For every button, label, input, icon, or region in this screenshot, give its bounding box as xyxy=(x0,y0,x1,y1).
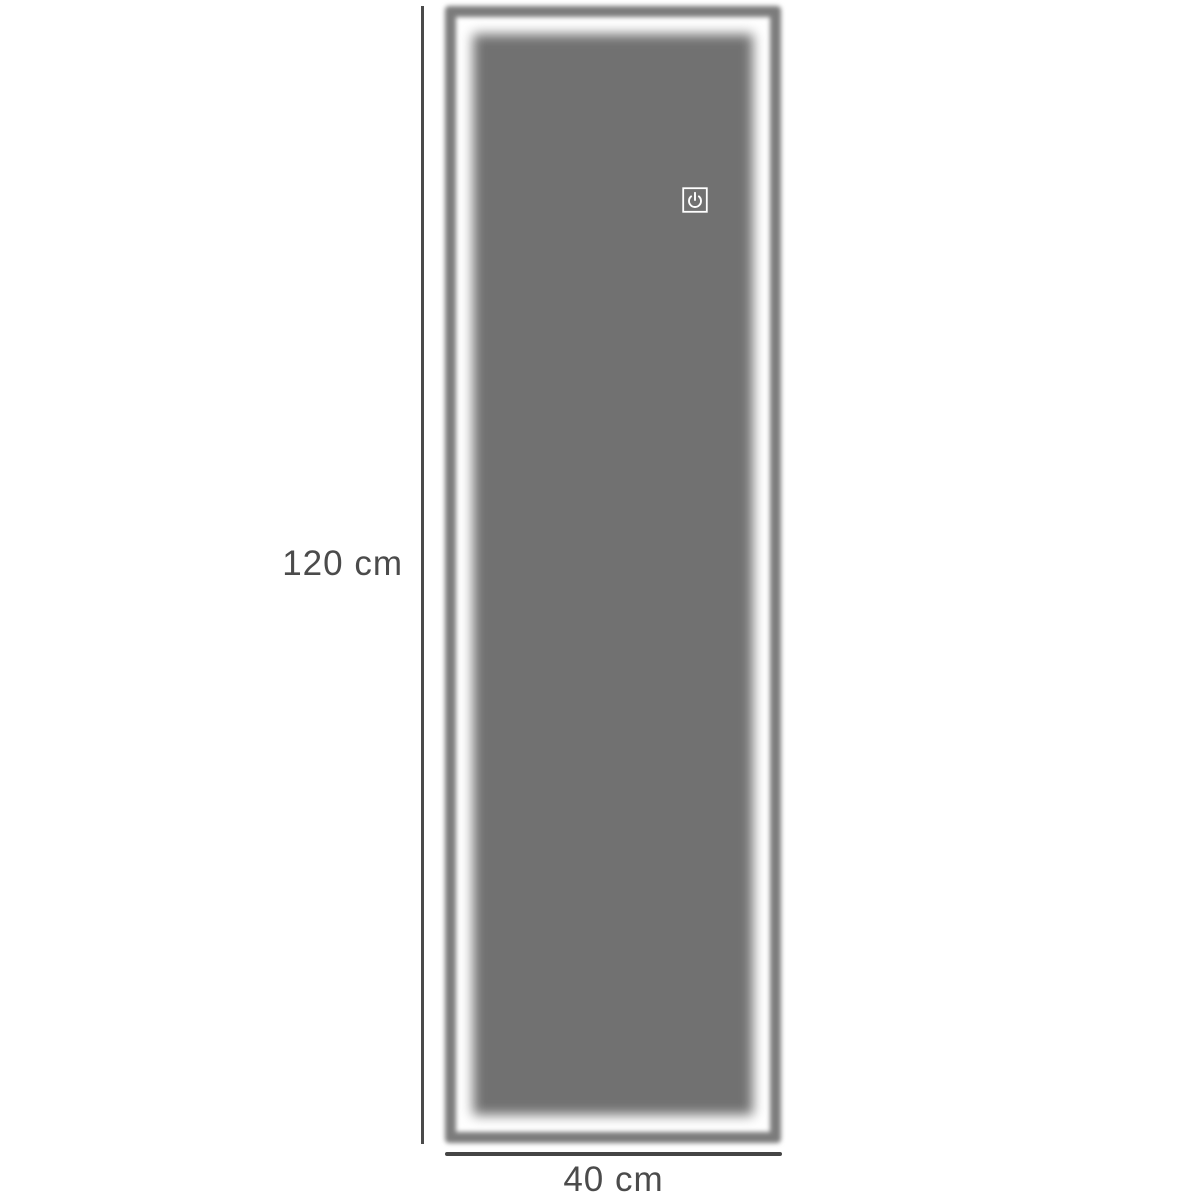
power-touch-icon xyxy=(682,187,708,213)
product-diagram: 120 cm 40 cm xyxy=(0,0,1200,1200)
mirror xyxy=(445,6,781,1143)
width-dimension-line xyxy=(445,1152,782,1156)
width-dimension-label: 40 cm xyxy=(445,1162,782,1197)
height-dimension-line xyxy=(421,6,424,1144)
mirror-surface xyxy=(473,34,753,1115)
height-dimension-label: 120 cm xyxy=(180,546,403,581)
